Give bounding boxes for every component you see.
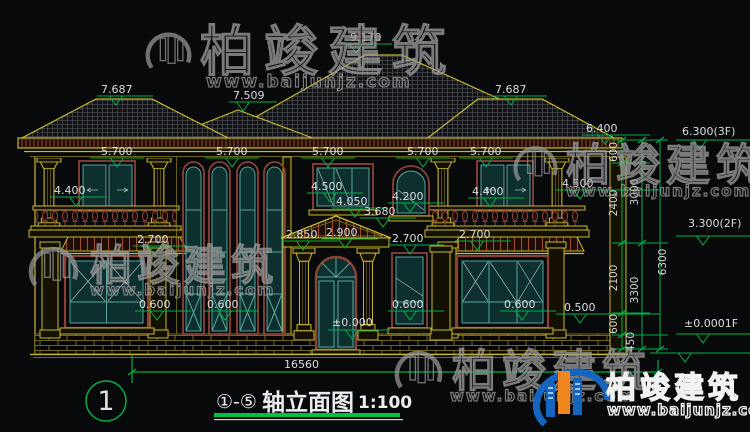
overall-width-label: 16560 (284, 358, 319, 371)
svg-text:5.700: 5.700 (216, 145, 248, 158)
title-text: 轴立面图 (262, 389, 354, 416)
svg-text:7.687: 7.687 (101, 83, 133, 96)
balcony-right (425, 206, 589, 237)
title-underline-thin (214, 419, 403, 420)
svg-text:5.700: 5.700 (312, 145, 344, 158)
svg-text:3.680: 3.680 (364, 205, 396, 218)
vdim-3300: 3300 (629, 277, 641, 304)
title-axis-range: ①-⑤ (216, 391, 257, 413)
logo-url-text: www.baijunjz.com (607, 401, 750, 419)
vdim-2100: 2100 (608, 265, 620, 292)
svg-text:2.900: 2.900 (326, 226, 358, 239)
svg-text:www.baijunjz.com: www.baijunjz.com (566, 182, 750, 200)
svg-text:4.050: 4.050 (336, 195, 368, 208)
svg-text:3.300(2F): 3.300(2F) (688, 217, 741, 230)
vdim-6300: 6300 (657, 249, 669, 276)
svg-text:5.700: 5.700 (407, 145, 439, 158)
cad-drawing-viewport: 9.170 7.687 7.509 7.687 6.400 5.700 5.70… (0, 0, 750, 432)
svg-text:4.400: 4.400 (54, 184, 86, 197)
drawing-title: ①-⑤ 轴立面图 1:100 (214, 389, 412, 420)
svg-text:4.400: 4.400 (472, 185, 504, 198)
svg-text:0.600: 0.600 (139, 298, 171, 311)
svg-text:5.700: 5.700 (101, 145, 133, 158)
svg-text:4.500: 4.500 (311, 180, 343, 193)
window-1f-right (452, 256, 553, 334)
elevation-drawing: 9.170 7.687 7.509 7.687 6.400 5.700 5.70… (0, 0, 750, 432)
svg-text:7.687: 7.687 (495, 83, 527, 96)
entrance-door (312, 257, 360, 354)
svg-text:www.baijunjz.com: www.baijunjz.com (206, 72, 412, 92)
svg-text:5.700: 5.700 (470, 145, 502, 158)
svg-text:0.600: 0.600 (207, 298, 239, 311)
title-scale: 1:100 (358, 393, 412, 413)
svg-text:www.baijunjz.com: www.baijunjz.com (90, 281, 275, 299)
svg-text:6.300(3F): 6.300(3F) (682, 125, 735, 138)
svg-text:0.600: 0.600 (504, 298, 536, 311)
axis-number: 1 (97, 386, 114, 417)
svg-text:±0.0001F: ±0.0001F (684, 317, 738, 330)
vdim-600-bottom: 600 (608, 314, 620, 334)
svg-text:2.850: 2.850 (286, 228, 318, 241)
svg-text:0.600: 0.600 (392, 298, 424, 311)
svg-text:2.700: 2.700 (459, 228, 491, 241)
svg-text:0.500: 0.500 (564, 301, 596, 314)
svg-text:4.200: 4.200 (392, 190, 424, 203)
svg-text:2.700: 2.700 (392, 232, 424, 245)
svg-text:6.400: 6.400 (586, 122, 618, 135)
svg-text:±0.000: ±0.000 (332, 316, 373, 329)
title-underline (214, 413, 400, 417)
